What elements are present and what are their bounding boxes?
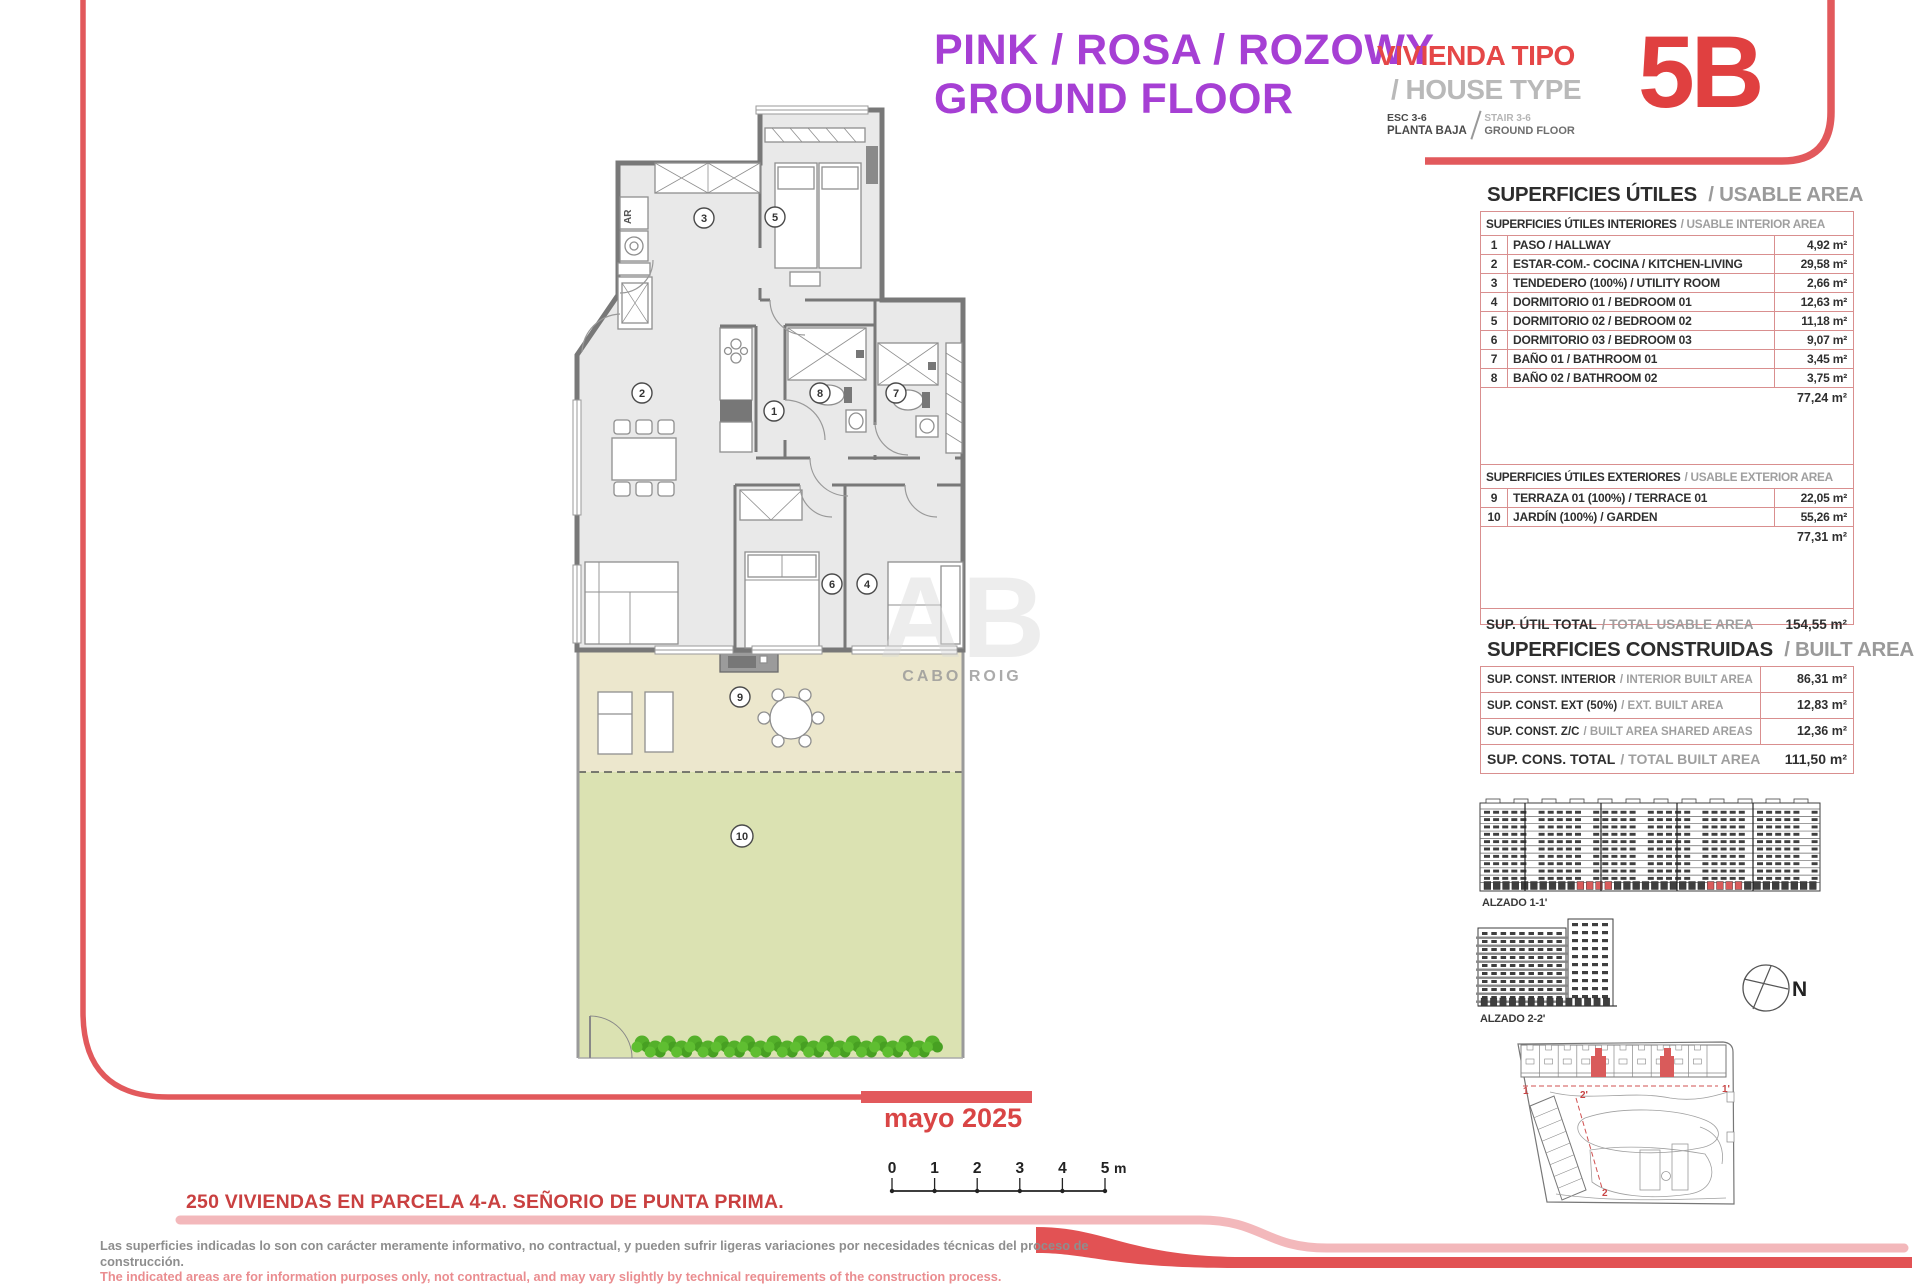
room-label-1: 1 xyxy=(764,401,784,421)
room-label-2: 2 xyxy=(632,383,652,403)
area-row: 6DORMITORIO 03 / BEDROOM 039,07 m² xyxy=(1481,331,1853,350)
usable-interior-header: SUPERFICIES ÚTILES INTERIORES / USABLE I… xyxy=(1481,212,1853,236)
floorplan-sheet: { "colors": { "accent_red": "#e04b4b", "… xyxy=(0,0,1920,1280)
site-plan: 11'2'2 xyxy=(1490,1032,1752,1216)
built-total-row: SUP. CONS. TOTAL / TOTAL BUILT AREA 111,… xyxy=(1481,745,1853,773)
scale-tick-label: 1 xyxy=(930,1160,939,1177)
scale-tick-label: 2 xyxy=(973,1160,982,1177)
dining-table xyxy=(612,438,676,480)
slash-divider xyxy=(1470,111,1481,140)
scale-tick-label: 3 xyxy=(1015,1160,1024,1177)
room-label-8: 8 xyxy=(810,383,830,403)
usable-total-value: 154,55 m² xyxy=(1785,617,1847,632)
ar-closet-label: AR xyxy=(623,209,634,224)
built-area-title: SUPERFICIES CONSTRUIDAS / BUILT AREA xyxy=(1487,638,1914,662)
elevation-2-label: ALZADO 2-2' xyxy=(1480,1013,1545,1025)
section-label: 2 xyxy=(1602,1188,1608,1199)
room-label-6: 6 xyxy=(822,574,842,594)
page-title-line1: PINK / ROSA / ROZOWY xyxy=(934,26,1435,75)
esc-label: ESC 3-6 xyxy=(1387,112,1467,125)
area-row: 5DORMITORIO 02 / BEDROOM 0211,18 m² xyxy=(1481,312,1853,331)
svg-text:8: 8 xyxy=(817,388,823,400)
date-label: mayo 2025 xyxy=(884,1103,1022,1134)
page-title-line2: GROUND FLOOR xyxy=(934,75,1435,124)
usable-area-table: SUPERFICIES ÚTILES INTERIORES / USABLE I… xyxy=(1480,211,1854,625)
room-label-10: 10 xyxy=(731,825,753,847)
svg-text:4: 4 xyxy=(864,579,871,591)
stair-en: STAIR 3-6 GROUND FLOOR xyxy=(1484,112,1574,138)
scale-tick-label: 0 xyxy=(888,1160,897,1177)
wardrobe xyxy=(740,490,802,520)
svg-text:2: 2 xyxy=(639,388,645,400)
svg-text:6: 6 xyxy=(829,579,835,591)
house-type-label: / HOUSE TYPE xyxy=(1391,74,1581,106)
garden-area xyxy=(578,772,963,1058)
elevation-1-label: ALZADO 1-1' xyxy=(1482,897,1547,909)
area-row: 9TERRAZA 01 (100%) / TERRACE 0122,05 m² xyxy=(1481,489,1853,508)
room-label-7: 7 xyxy=(886,383,906,403)
room-label-4: 4 xyxy=(857,574,877,594)
elevation-2-drawing xyxy=(1475,912,1675,1012)
built-area-row: SUP. CONST. INTERIOR/ INTERIOR BUILT ARE… xyxy=(1481,667,1853,693)
ground-floor-label: GROUND FLOOR xyxy=(1484,125,1574,138)
area-row: 8BAÑO 02 / BATHROOM 023,75 m² xyxy=(1481,369,1853,388)
section-label: 2' xyxy=(1580,1090,1588,1101)
section-label: 1 xyxy=(1523,1086,1529,1097)
scale-tick-label: 4 xyxy=(1058,1160,1067,1177)
usable-area-title: SUPERFICIES ÚTILES / USABLE AREA xyxy=(1487,183,1863,207)
room-label-3: 3 xyxy=(694,208,714,228)
area-row: 3TENDEDERO (100%) / UTILITY ROOM2,66 m² xyxy=(1481,274,1853,293)
exterior-subtotal: 77,31 m² xyxy=(1481,527,1853,547)
stair-es: ESC 3-6 PLANTA BAJA xyxy=(1387,112,1467,138)
svg-text:10: 10 xyxy=(736,831,748,843)
svg-text:7: 7 xyxy=(893,388,899,400)
scale-tick-label: 5 xyxy=(1101,1160,1110,1177)
compass-icon: N xyxy=(1734,958,1819,1018)
area-row: 4DORMITORIO 01 / BEDROOM 0112,63 m² xyxy=(1481,293,1853,312)
sun-lounger xyxy=(598,692,632,754)
built-area-row: SUP. CONST. EXT (50%)/ EXT. BUILT AREA12… xyxy=(1481,693,1853,719)
terrace-table xyxy=(770,697,812,739)
area-row: 7BAÑO 01 / BATHROOM 013,45 m² xyxy=(1481,350,1853,369)
interior-subtotal: 77,24 m² xyxy=(1481,388,1853,408)
disclaimer-es: Las superficies indicadas lo son con car… xyxy=(100,1238,1145,1270)
built-area-table: SUP. CONST. INTERIOR/ INTERIOR BUILT ARE… xyxy=(1480,666,1854,774)
floor-plan: AR 12345678910 xyxy=(560,100,990,1070)
elevation-1-drawing xyxy=(1477,797,1827,897)
svg-text:5: 5 xyxy=(772,212,778,224)
built-total-value: 111,50 m² xyxy=(1785,751,1853,767)
area-row: 2ESTAR-COM.- COCINA / KITCHEN-LIVING29,5… xyxy=(1481,255,1853,274)
disclaimer-en: The indicated areas are for information … xyxy=(100,1269,1200,1284)
planta-baja-label: PLANTA BAJA xyxy=(1387,125,1467,138)
built-area-row: SUP. CONST. Z/C/ BUILT AREA SHARED AREAS… xyxy=(1481,719,1853,745)
usable-total-row: SUP. ÚTIL TOTAL / TOTAL USABLE AREA 154,… xyxy=(1481,608,1853,639)
section-label: 1' xyxy=(1722,1084,1730,1095)
scale-bar: 012345m xyxy=(876,1158,1156,1208)
svg-text:1: 1 xyxy=(771,406,777,418)
page-title: PINK / ROSA / ROZOWY GROUND FLOOR xyxy=(934,26,1435,124)
sun-lounger xyxy=(645,692,673,752)
vivienda-tipo-label: VIVIENDA TIPO xyxy=(1377,40,1575,72)
svg-text:3: 3 xyxy=(701,213,707,225)
north-label: N xyxy=(1792,978,1807,1001)
unit-code: 5B xyxy=(1638,14,1760,131)
usable-exterior-header: SUPERFICIES ÚTILES EXTERIORES / USABLE E… xyxy=(1481,464,1853,489)
scale-unit: m xyxy=(1114,1160,1126,1176)
room-label-9: 9 xyxy=(730,687,750,707)
room-label-5: 5 xyxy=(765,207,785,227)
stair-floor-block: ESC 3-6 PLANTA BAJA STAIR 3-6 GROUND FLO… xyxy=(1387,110,1575,140)
area-row: 1PASO / HALLWAY4,92 m² xyxy=(1481,236,1853,255)
area-row: 10JARDÍN (100%) / GARDEN55,26 m² xyxy=(1481,508,1853,527)
svg-text:9: 9 xyxy=(737,692,743,704)
project-title: 250 VIVIENDAS EN PARCELA 4-A. SEÑORIO DE… xyxy=(186,1191,784,1214)
stair-label: STAIR 3-6 xyxy=(1484,112,1574,125)
